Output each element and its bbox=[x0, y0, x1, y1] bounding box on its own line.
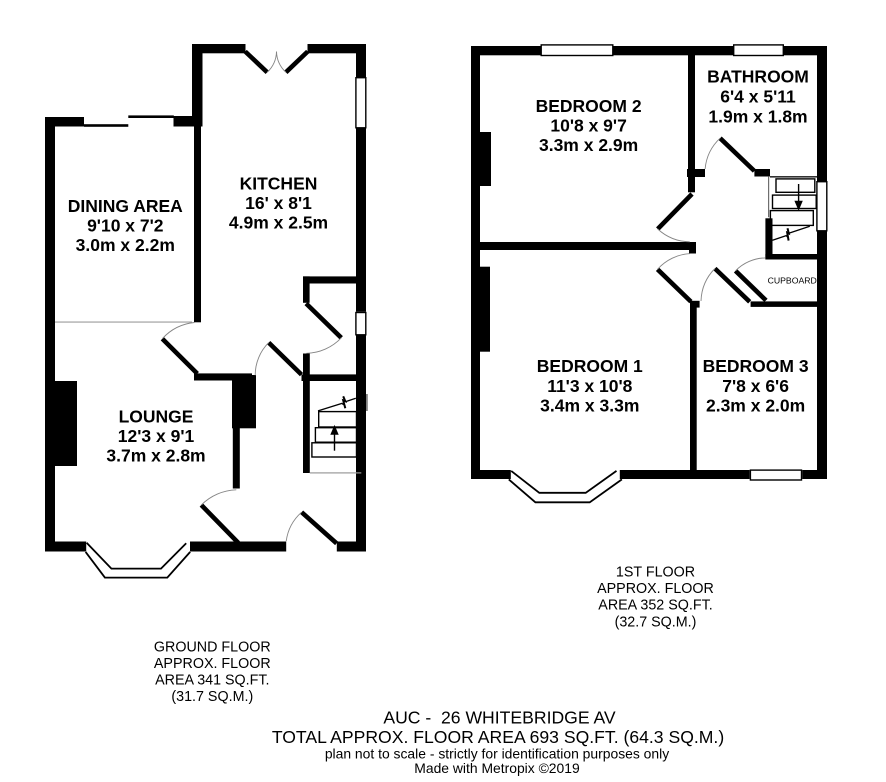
svg-text:4.9m x 2.5m: 4.9m x 2.5m bbox=[229, 213, 328, 233]
svg-text:CUPBOARD: CUPBOARD bbox=[768, 275, 817, 285]
svg-text:BEDROOM 3: BEDROOM 3 bbox=[703, 356, 809, 376]
svg-text:16' x 8'1: 16' x 8'1 bbox=[245, 193, 312, 213]
svg-text:BATHROOM: BATHROOM bbox=[707, 66, 809, 86]
svg-text:(31.7 SQ.M.): (31.7 SQ.M.) bbox=[171, 689, 253, 705]
svg-text:3.4m x 3.3m: 3.4m x 3.3m bbox=[540, 395, 639, 415]
svg-text:BEDROOM 2: BEDROOM 2 bbox=[536, 96, 642, 116]
svg-text:BEDROOM 1: BEDROOM 1 bbox=[537, 356, 643, 376]
svg-text:11'3 x 10'8: 11'3 x 10'8 bbox=[547, 376, 632, 396]
svg-text:6'4 x 5'11: 6'4 x 5'11 bbox=[720, 86, 796, 106]
svg-text:AREA 352 SQ.FT.: AREA 352 SQ.FT. bbox=[598, 598, 712, 614]
svg-text:LOUNGE: LOUNGE bbox=[119, 406, 194, 426]
svg-text:APPROX. FLOOR: APPROX. FLOOR bbox=[154, 656, 271, 672]
svg-text:APPROX. FLOOR: APPROX. FLOOR bbox=[597, 581, 714, 597]
svg-text:9'10 x 7'2: 9'10 x 7'2 bbox=[87, 216, 164, 236]
svg-text:3.3m x 2.9m: 3.3m x 2.9m bbox=[539, 135, 638, 155]
svg-text:KITCHEN: KITCHEN bbox=[240, 173, 318, 193]
svg-text:TOTAL APPROX. FLOOR AREA 693 S: TOTAL APPROX. FLOOR AREA 693 SQ.FT. (64.… bbox=[272, 727, 724, 747]
svg-text:DINING AREA: DINING AREA bbox=[68, 196, 183, 216]
svg-text:1.9m x 1.8m: 1.9m x 1.8m bbox=[708, 106, 807, 126]
svg-text:7'8 x 6'6: 7'8 x 6'6 bbox=[722, 376, 789, 396]
svg-text:2.3m x 2.0m: 2.3m x 2.0m bbox=[706, 395, 805, 415]
svg-text:3.7m x 2.8m: 3.7m x 2.8m bbox=[106, 446, 205, 466]
svg-text:1ST FLOOR: 1ST FLOOR bbox=[616, 565, 695, 581]
svg-text:AREA 341 SQ.FT.: AREA 341 SQ.FT. bbox=[155, 673, 269, 689]
svg-text:Made with Metropix ©2019: Made with Metropix ©2019 bbox=[414, 760, 580, 776]
svg-text:AUC - 26 WHITEBRIDGE AV: AUC - 26 WHITEBRIDGE AV bbox=[383, 707, 616, 727]
svg-text:3.0m x 2.2m: 3.0m x 2.2m bbox=[76, 235, 175, 255]
svg-text:(32.7 SQ.M.): (32.7 SQ.M.) bbox=[615, 614, 697, 630]
svg-text:10'8 x 9'7: 10'8 x 9'7 bbox=[550, 116, 626, 136]
svg-text:GROUND FLOOR: GROUND FLOOR bbox=[154, 639, 271, 655]
svg-text:12'3 x 9'1: 12'3 x 9'1 bbox=[118, 426, 195, 446]
